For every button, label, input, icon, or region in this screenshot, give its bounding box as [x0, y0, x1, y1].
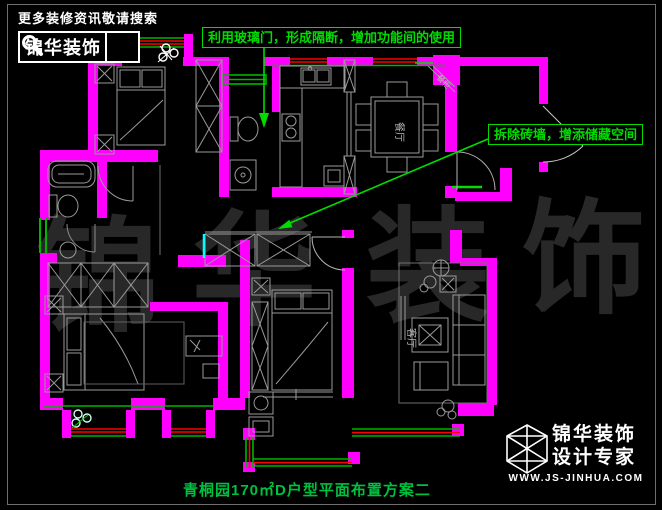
- dining-label: 餐厅: [393, 122, 406, 142]
- footer-brand-line2: 设计专家: [552, 446, 636, 469]
- footer-brand: 锦华装饰 设计专家: [552, 423, 636, 469]
- footer-website: WWW.JS-JINHUA.COM: [500, 473, 652, 484]
- inner-entry-door-arc: [457, 152, 495, 190]
- flower-icon-bottom: [72, 410, 91, 428]
- header-brand-box: 锦华装饰: [18, 31, 140, 63]
- glass-partition: [344, 60, 355, 194]
- bedroom1-bed: [95, 64, 165, 154]
- watermark-char-4: 饰: [522, 187, 646, 332]
- annotation-glass-door: 利用玻璃门，形成隔断，增加功能间的使用: [202, 27, 461, 48]
- basin-2: [230, 160, 256, 190]
- annotation-remove-wall: 拆除砖墙，增添储藏空间: [488, 124, 643, 145]
- bedroom2-door-arc: [312, 237, 345, 270]
- watermark: 锦 华 装 饰: [36, 187, 646, 350]
- cube-logo-icon: [502, 421, 552, 479]
- footer-brand-line1: 锦华装饰: [552, 423, 636, 446]
- header-tagline: 更多装修资讯敬请搜索: [18, 8, 158, 27]
- arrow-down-icon: [259, 113, 269, 128]
- search-icon: [107, 33, 138, 61]
- plan-caption: 青桐园170㎡D户型平面布置方案二: [183, 479, 431, 500]
- bedroom1-wardrobe: [196, 60, 222, 152]
- floorplan-poster: 锦 华 装 饰: [0, 0, 662, 510]
- kitchen-counter: [280, 66, 345, 187]
- toilet-2: [230, 117, 258, 141]
- living-label: 客厅: [405, 328, 418, 348]
- bathtub: [48, 161, 95, 187]
- watermark-char-1: 锦: [36, 205, 160, 350]
